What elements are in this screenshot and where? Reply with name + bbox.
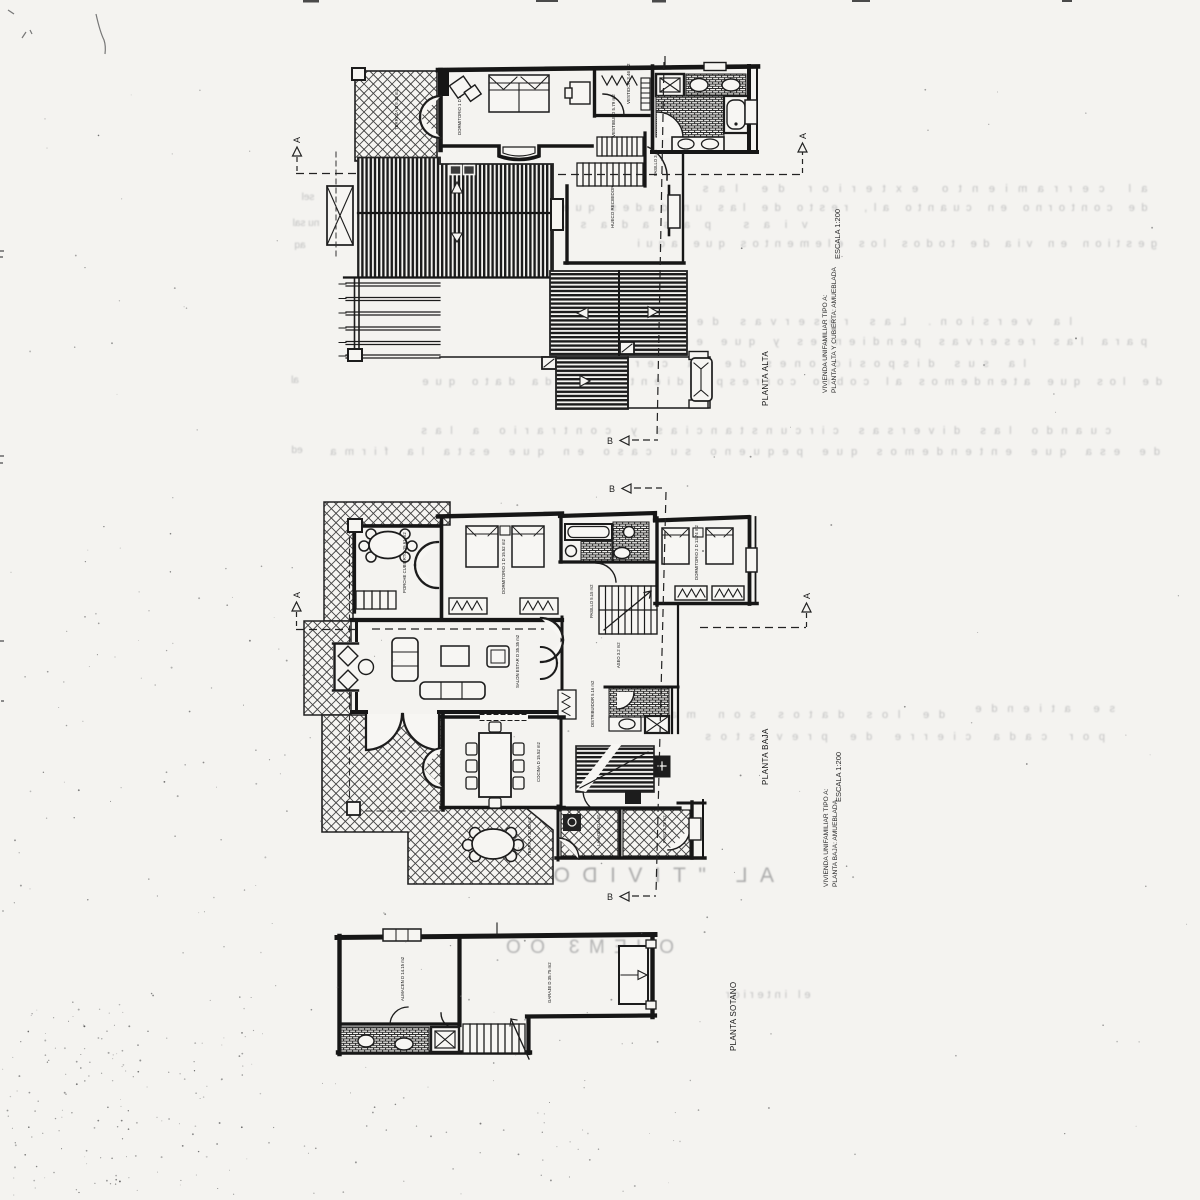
svg-text:A: A [292, 592, 302, 598]
svg-text:HUECO RECIBIDOR: HUECO RECIBIDOR [610, 185, 615, 228]
svg-text:PLANTA BAJA: AMUEBLADA: PLANTA BAJA: AMUEBLADA [832, 799, 839, 887]
svg-text:de los que atendemos al cobro: de los que atendemos al cobro correspond… [422, 376, 1162, 388]
svg-text:A: A [292, 137, 302, 143]
svg-text:TERRAZA D 9.15 m2: TERRAZA D 9.15 m2 [394, 89, 399, 130]
svg-text:ESCALA 1:200: ESCALA 1:200 [833, 209, 842, 259]
svg-text:nu sal: nu sal [293, 218, 320, 229]
svg-text:PASILLO 3.06: PASILLO 3.06 [653, 149, 658, 176]
svg-text:VIVIENDA UNIFAMILIAR TIPO A:: VIVIENDA UNIFAMILIAR TIPO A: [823, 788, 830, 887]
svg-text:PASILLO 5.15 m2: PASILLO 5.15 m2 [589, 584, 594, 618]
svg-text:B: B [609, 484, 615, 494]
svg-text:VESTIDOR 3.46 m2: VESTIDOR 3.46 m2 [626, 63, 631, 104]
svg-text:GARAJE D 35.75 m2: GARAJE D 35.75 m2 [547, 962, 552, 1003]
svg-text:de contorno en cuanto al, rest: de contorno en cuanto al, resto de las u… [563, 202, 1148, 214]
svg-text:DISTRIBUIDOR 5.16 m2: DISTRIBUIDOR 5.16 m2 [590, 680, 595, 727]
svg-text:ALMACEN D 14.15 m2: ALMACEN D 14.15 m2 [400, 956, 405, 1001]
svg-text:PLANTA ALTA: PLANTA ALTA [761, 351, 770, 406]
svg-text:PLANTA BAJA: PLANTA BAJA [761, 728, 770, 785]
svg-text:ASEO 3.2 m2: ASEO 3.2 m2 [616, 642, 621, 668]
svg-text:A: A [802, 593, 812, 599]
svg-text:A: A [798, 133, 808, 139]
svg-text:ed: ed [291, 445, 302, 456]
svg-text:PLANTA ALTA Y CUBIERTA: AMUEBL: PLANTA ALTA Y CUBIERTA: AMUEBLADA [831, 266, 838, 393]
svg-text:B: B [607, 892, 613, 902]
svg-text:VIVIENDA UNIFAMILIAR TIPO A:: VIVIENDA UNIFAMILIAR TIPO A: [822, 294, 829, 393]
svg-text:PLANTA SOTANO: PLANTA SOTANO [729, 982, 738, 1051]
svg-text:sel: sel [302, 192, 315, 203]
svg-text:DORMITORIO 2 D 13.74 m2: DORMITORIO 2 D 13.74 m2 [694, 525, 699, 580]
svg-text:al: al [291, 375, 299, 386]
svg-text:VESTIBULO 5.79 m2: VESTIBULO 5.79 m2 [611, 94, 616, 137]
svg-text:COCINA D 15.52 m2: COCINA D 15.52 m2 [536, 742, 541, 782]
svg-text:aq: aq [294, 240, 305, 251]
svg-text:el interior: el interior [726, 989, 811, 1001]
svg-text:LAVADERO 3.60: LAVADERO 3.60 [596, 814, 601, 846]
svg-text:PORCHE CUBIERTO 15.61 m2: PORCHE CUBIERTO 15.61 m2 [402, 532, 407, 593]
svg-text:TERRAZA 30.50 m2: TERRAZA 30.50 m2 [527, 816, 532, 856]
svg-text:DORMITORIO 1 D 15.52 m2: DORMITORIO 1 D 15.52 m2 [501, 539, 506, 594]
svg-text:PASO 5.28 m2: PASO 5.28 m2 [662, 815, 667, 843]
svg-text:SALON ESTAR D 35.35 m2: SALON ESTAR D 35.35 m2 [515, 634, 520, 688]
svg-text:B: B [607, 436, 613, 446]
svg-text:ESCALA 1:200: ESCALA 1:200 [834, 752, 843, 802]
